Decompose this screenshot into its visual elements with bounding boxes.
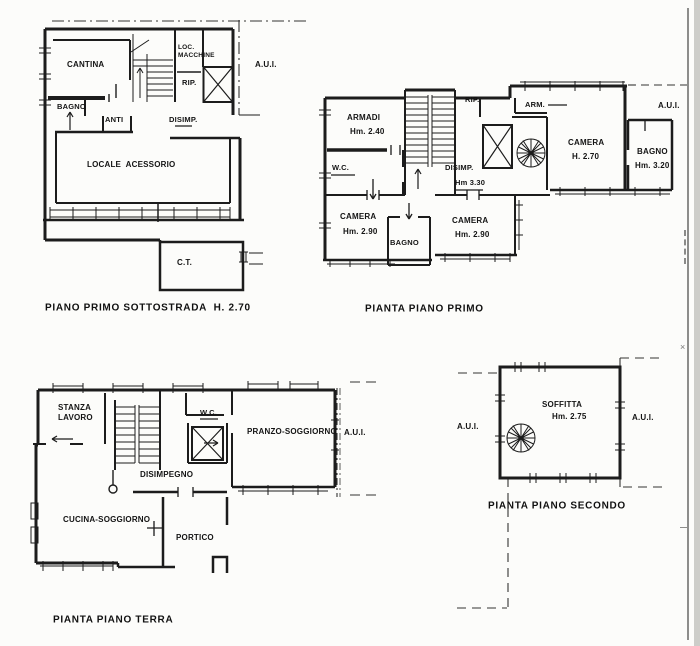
area-label-aui: A.U.I. bbox=[658, 101, 680, 110]
plan-caption-piano-terra: PIANTA PIANO TERRA bbox=[53, 614, 173, 626]
room-label-camera-sx-height: Hm. 2.90 bbox=[343, 227, 378, 236]
plan-d-spiral-stair bbox=[507, 424, 535, 452]
plan-piano-terra: STANZA LAVORO W.C. PRANZO-SOGGIORNO A.U.… bbox=[28, 375, 388, 627]
plan-d-outer-walls bbox=[500, 367, 620, 478]
plan-b-outer-walls-2 bbox=[323, 120, 672, 260]
plan-c-outer-walls-2 bbox=[118, 487, 335, 573]
room-label-disimp-height: Hm 3.30 bbox=[455, 178, 485, 187]
room-label-anti: ANTI bbox=[105, 115, 123, 124]
plan-caption-piano-primo: PIANTA PIANO PRIMO bbox=[365, 303, 484, 315]
room-label-disimp: DISIMP. bbox=[445, 163, 473, 172]
room-label-armadi-height: Hm. 2.40 bbox=[350, 127, 385, 136]
room-label-disimp: DISIMP. bbox=[169, 115, 197, 124]
sheet-border-line bbox=[687, 8, 689, 640]
sheet-side-marks bbox=[684, 230, 686, 264]
room-label-bagno: BAGNO bbox=[57, 102, 86, 111]
plan-b-windows bbox=[319, 81, 670, 267]
room-label-camera-centro: CAMERA bbox=[568, 138, 604, 147]
room-label-wc: W.C. bbox=[332, 163, 349, 172]
plan-c-elevator bbox=[192, 427, 223, 460]
scan-edge-strip bbox=[694, 0, 700, 646]
floor-plan-sheet: { "sheet": { "background": "#fcfcfa", "i… bbox=[0, 0, 700, 646]
plan-piano-secondo-drawing bbox=[445, 350, 697, 622]
room-label-loc-macchine-line2: MACCHINE bbox=[178, 52, 215, 60]
room-label-camera-centro-height: H. 2.70 bbox=[572, 152, 599, 161]
room-label-armadi: ARMADI bbox=[347, 113, 380, 122]
room-label-bagno-centro: BAGNO bbox=[390, 238, 419, 247]
plan-b-door-jambs bbox=[331, 105, 645, 219]
plan-sottostrada: CANTINA BAGNO ANTI LOC. MACCHINE RIP. DI… bbox=[35, 14, 317, 326]
room-label-soffitta-height: Hm. 2.75 bbox=[552, 412, 587, 421]
room-label-bagno-dx-height: Hm. 3.20 bbox=[635, 161, 670, 170]
room-label-arm: ARM. bbox=[525, 100, 545, 109]
room-label-camera-dx: CAMERA bbox=[452, 216, 488, 225]
plan-b-spiral-stair bbox=[517, 139, 545, 167]
area-label-aui-right: A.U.I. bbox=[632, 413, 654, 422]
plan-b-stairs bbox=[405, 95, 455, 189]
room-label-rip: RIP. bbox=[465, 95, 479, 104]
plan-d-windows bbox=[495, 362, 625, 483]
plan-c-boundary-dashes bbox=[337, 382, 380, 497]
room-label-cantina: CANTINA bbox=[67, 60, 104, 69]
room-label-loc-macchine-line1: LOC. bbox=[178, 44, 194, 52]
room-label-camera-dx-height: Hm. 2.90 bbox=[455, 230, 490, 239]
room-label-disimpegno: DISIMPEGNO bbox=[140, 470, 193, 479]
room-label-stanza-lavoro-line1: STANZA bbox=[58, 403, 91, 412]
plan-b-elevator bbox=[483, 125, 512, 168]
room-label-bagno-dx: BAGNO bbox=[637, 147, 668, 156]
plan-piano-secondo: SOFFITTA Hm. 2.75 A.U.I. A.U.I. PIANTA P… bbox=[445, 350, 697, 622]
area-label-aui-left: A.U.I. bbox=[457, 422, 479, 431]
plan-a-door-jambs bbox=[109, 72, 201, 102]
room-label-cucina-soggiorno: CUCINA-SOGGIORNO bbox=[63, 515, 150, 524]
plan-a-elevator bbox=[204, 67, 233, 102]
plan-caption-piano-secondo: PIANTA PIANO SECONDO bbox=[488, 500, 626, 512]
sheet-border-cross-mark: × bbox=[680, 342, 685, 352]
room-label-locale-acessorio: LOCALE ACESSORIO bbox=[87, 160, 175, 169]
area-label-aui: A.U.I. bbox=[255, 60, 277, 69]
area-label-aui: A.U.I. bbox=[344, 428, 366, 437]
room-label-pranzo-soggiorno: PRANZO-SOGGIORNO bbox=[247, 427, 337, 436]
room-label-stanza-lavoro-line2: LAVORO bbox=[58, 413, 93, 422]
room-label-rip: RIP. bbox=[182, 78, 196, 87]
room-label-soffitta: SOFFITTA bbox=[542, 400, 582, 409]
sheet-border-tick bbox=[680, 527, 689, 528]
plan-a-stairs bbox=[131, 34, 173, 102]
plan-piano-primo: ARMADI Hm. 2.40 W.C. RIP. ARM. CAMERA H.… bbox=[315, 55, 697, 323]
room-label-ct: C.T. bbox=[177, 258, 192, 267]
room-label-camera-sx: CAMERA bbox=[340, 212, 376, 221]
plan-caption-sottostrada: PIANO PRIMO SOTTOSTRADA H. 2.70 bbox=[45, 302, 251, 314]
room-label-wc: W.C. bbox=[200, 408, 217, 417]
room-label-portico: PORTICO bbox=[176, 533, 214, 542]
plan-piano-primo-drawing bbox=[315, 55, 697, 323]
